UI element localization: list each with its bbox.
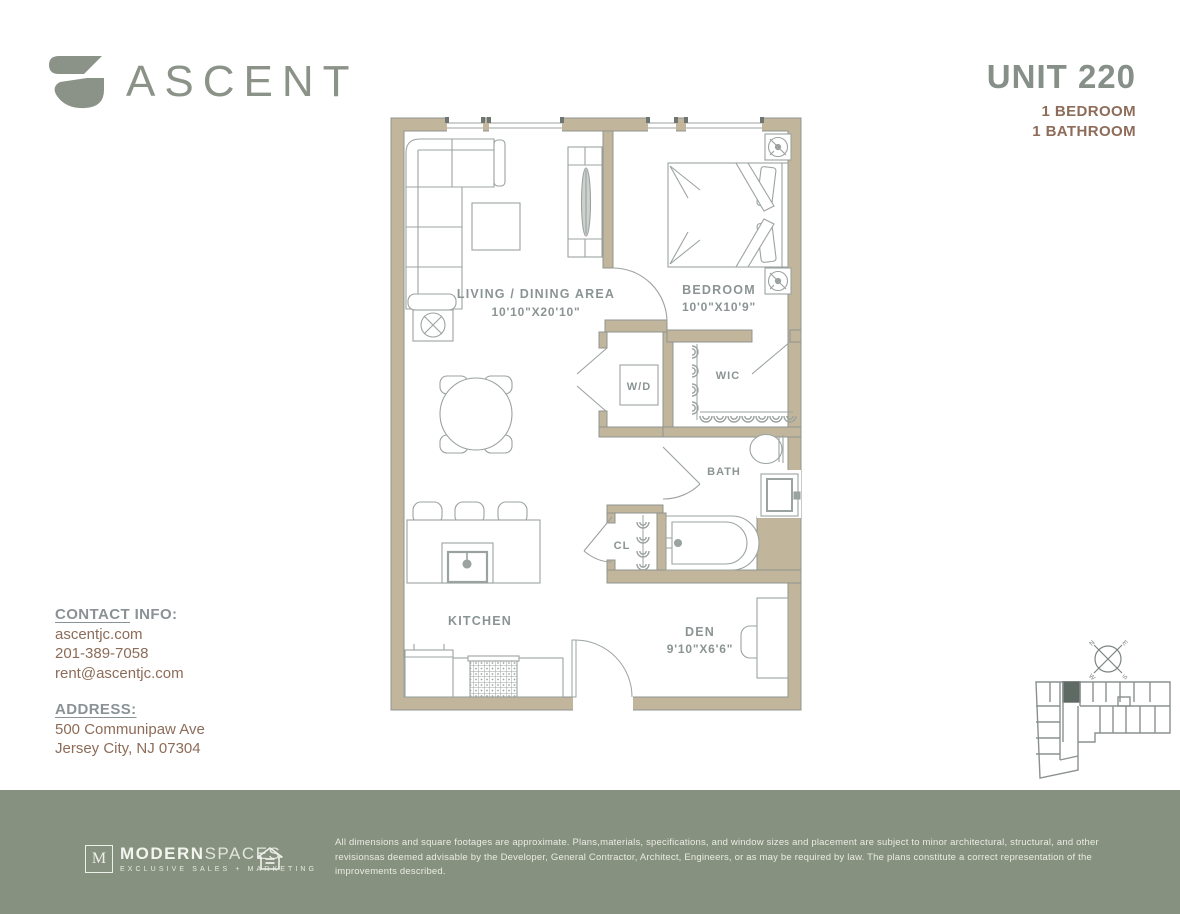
room-dims-living: 10'10"X20'10" [492, 305, 581, 319]
entry-door [572, 640, 633, 711]
room-label-living: LIVING / DINING AREA [457, 287, 615, 301]
ascent-logo-icon [46, 52, 112, 112]
brand-header: ASCENT [46, 52, 358, 112]
compass-s: S [1121, 673, 1129, 681]
room-dims-bedroom: 10'0"X10'9" [682, 300, 756, 314]
address-line2: Jersey City, NJ 07304 [55, 739, 205, 759]
footer-bar: M MODERNSPACES EXCLUSIVE SALES + MARKETI… [0, 790, 1180, 914]
agency-tagline: EXCLUSIVE SALES + MARKETING [120, 866, 317, 873]
contact-email: rent@ascentjc.com [55, 664, 205, 684]
room-label-den: DEN [685, 625, 715, 639]
room-label-cl: CL [614, 540, 631, 552]
toilet [750, 435, 783, 464]
building-keyplan [1036, 682, 1170, 778]
tv-console [568, 147, 602, 257]
window [487, 117, 564, 132]
contact-heading: CONTACT INFO: [55, 605, 205, 625]
wic-door [752, 342, 790, 374]
stove [470, 661, 517, 697]
cl-door [584, 517, 612, 562]
kitchen-island [407, 502, 540, 583]
contact-website: ascentjc.com [55, 625, 205, 645]
bath-door [663, 447, 700, 499]
address-line1: 500 Communipaw Ave [55, 720, 205, 740]
compass-e: E [1121, 639, 1129, 647]
bed [668, 163, 788, 267]
vanity-sink [757, 470, 801, 518]
brand-name: ASCENT [126, 57, 358, 107]
unit-info: UNIT 220 1 BEDROOM 1 BATHROOM [987, 58, 1136, 142]
unit-bedrooms: 1 BEDROOM [987, 102, 1136, 122]
desk-chair [741, 626, 757, 658]
floorplan-flyer-page: { "brand": { "name": "ASCENT" }, "unit":… [0, 0, 1180, 914]
cl-hangers [637, 515, 649, 570]
unit-number: UNIT 220 [987, 58, 1136, 96]
keyplan: N E S W [1030, 628, 1180, 788]
compass-w: W [1087, 673, 1097, 683]
den-desk [741, 598, 788, 678]
unit-bathrooms: 1 BATHROOM [987, 122, 1136, 142]
room-label-bath: BATH [707, 466, 741, 478]
floor-plan: LIVING / DINING AREA 10'10"X20'10" BEDRO… [385, 110, 810, 725]
highlighted-unit [1063, 682, 1080, 702]
agency-name-bold: MODERN [120, 844, 205, 863]
window [684, 117, 764, 132]
room-label-kitchen: KITCHEN [448, 614, 512, 628]
room-label-bedroom: BEDROOM [682, 283, 756, 297]
equal-housing-icon [256, 845, 284, 873]
room-label-wd: W/D [627, 381, 651, 393]
window [445, 117, 485, 132]
dining-table [440, 376, 512, 453]
wd-closet-double-door [577, 348, 607, 412]
kitchen-counter [404, 644, 563, 697]
bathtub [666, 516, 759, 570]
window [646, 117, 678, 132]
modern-spaces-monogram: M [85, 845, 113, 873]
ceiling-fixture [413, 310, 453, 341]
contact-phone: 201-389-7058 [55, 644, 205, 664]
address-heading: ADDRESS: [55, 700, 205, 720]
footer-disclaimer: All dimensions and square footages are a… [335, 836, 1135, 880]
room-label-wic: WIC [716, 370, 740, 382]
bedroom-door-arc [613, 268, 667, 322]
contact-address-block: CONTACT INFO: ascentjc.com 201-389-7058 … [55, 605, 205, 759]
coffee-table [472, 203, 520, 250]
wic-hangers [692, 344, 796, 422]
compass-icon [1094, 645, 1122, 673]
room-dims-den: 9'10"X6'6" [667, 642, 733, 656]
